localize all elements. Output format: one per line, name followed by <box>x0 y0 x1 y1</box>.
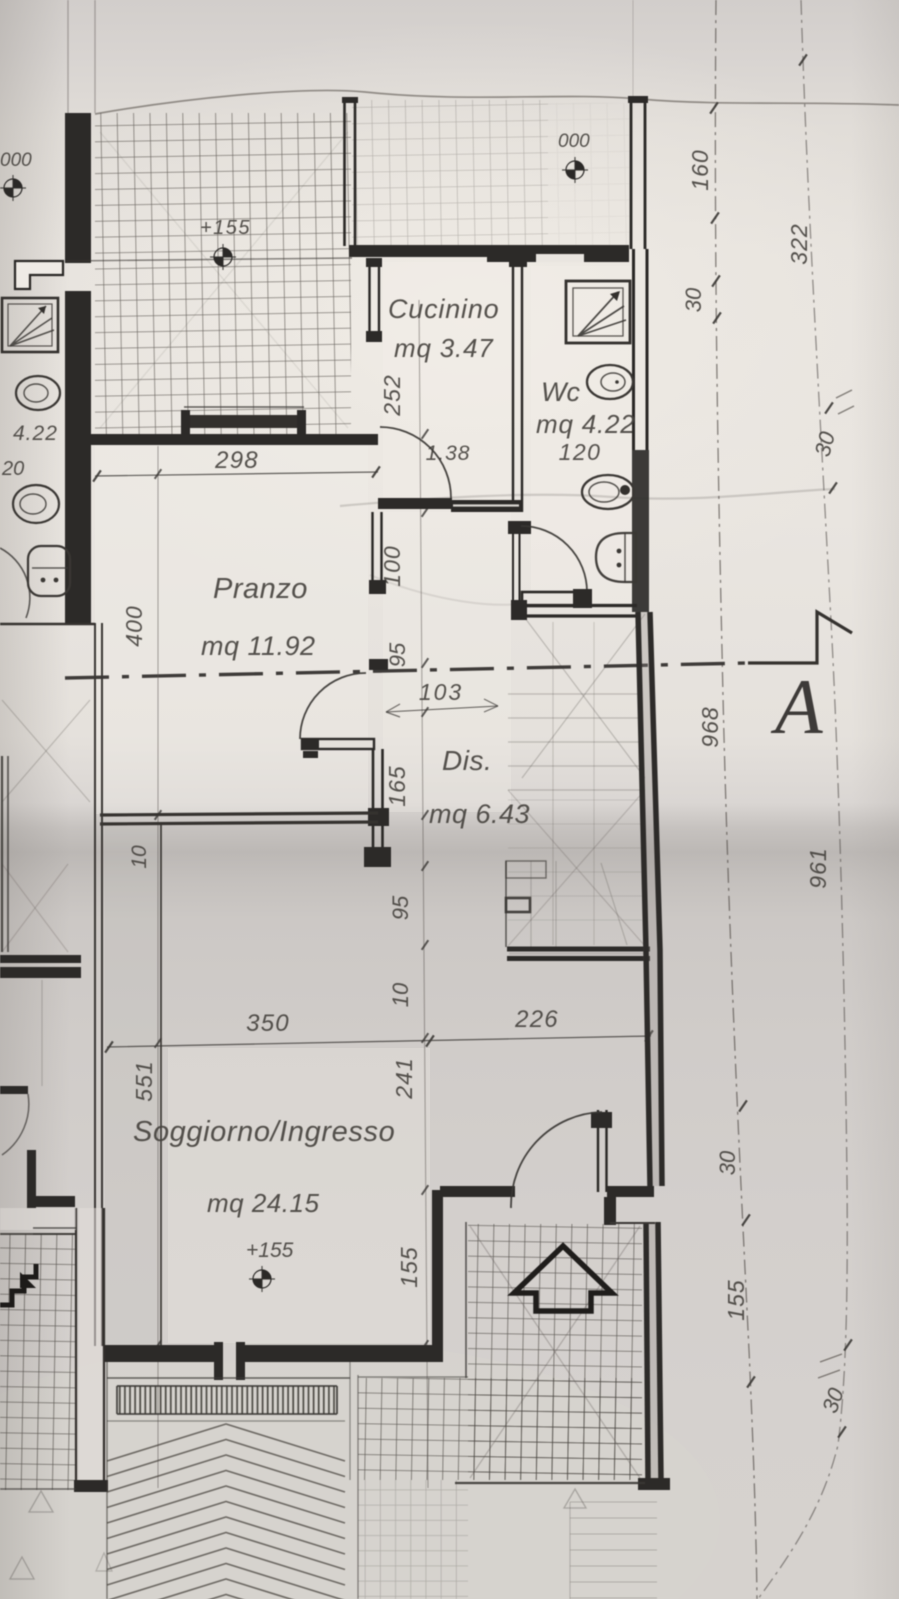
svg-text:160: 160 <box>687 149 713 190</box>
svg-text:10: 10 <box>128 845 151 869</box>
svg-text:298: 298 <box>214 447 259 474</box>
svg-text:Cucinino: Cucinino <box>388 294 499 324</box>
svg-text:968: 968 <box>697 706 723 747</box>
svg-text:A: A <box>770 663 823 750</box>
svg-text:103: 103 <box>419 679 463 705</box>
svg-text:mq 24.15: mq 24.15 <box>207 1188 319 1218</box>
svg-text:Pranzo: Pranzo <box>213 573 308 605</box>
svg-text:30: 30 <box>681 287 706 312</box>
svg-text:+155: +155 <box>246 1239 294 1262</box>
svg-text:120: 120 <box>559 439 602 465</box>
svg-text:mq 11.92: mq 11.92 <box>201 631 316 661</box>
svg-text:mq 6.43: mq 6.43 <box>429 799 530 829</box>
svg-text:Dis.: Dis. <box>442 745 492 776</box>
svg-text:95: 95 <box>385 642 410 667</box>
svg-text:961: 961 <box>805 847 831 888</box>
svg-text:165: 165 <box>384 765 410 806</box>
svg-text:10: 10 <box>388 982 413 1007</box>
svg-text:000: 000 <box>0 150 32 171</box>
svg-text:155: 155 <box>723 1279 749 1320</box>
svg-text:241: 241 <box>391 1057 417 1099</box>
svg-text:95: 95 <box>388 895 413 920</box>
svg-text:Soggiorno/Ingresso: Soggiorno/Ingresso <box>133 1116 395 1148</box>
svg-text:mq 3.47: mq 3.47 <box>394 333 494 363</box>
svg-text:252: 252 <box>379 374 405 416</box>
svg-text:350: 350 <box>246 1010 290 1037</box>
svg-text:400: 400 <box>121 605 147 646</box>
svg-text:+155: +155 <box>200 217 251 239</box>
svg-text:226: 226 <box>514 1006 559 1033</box>
svg-text:Wc: Wc <box>541 377 580 407</box>
svg-text:000: 000 <box>558 131 590 152</box>
svg-text:551: 551 <box>131 1060 157 1101</box>
svg-text:20: 20 <box>1 458 24 480</box>
svg-text:1.38: 1.38 <box>426 442 471 465</box>
svg-text:mq 4.22: mq 4.22 <box>536 409 636 439</box>
svg-text:4.22: 4.22 <box>13 422 58 445</box>
svg-text:155: 155 <box>396 1246 422 1287</box>
svg-text:30: 30 <box>715 1150 740 1175</box>
svg-text:322: 322 <box>786 223 812 264</box>
